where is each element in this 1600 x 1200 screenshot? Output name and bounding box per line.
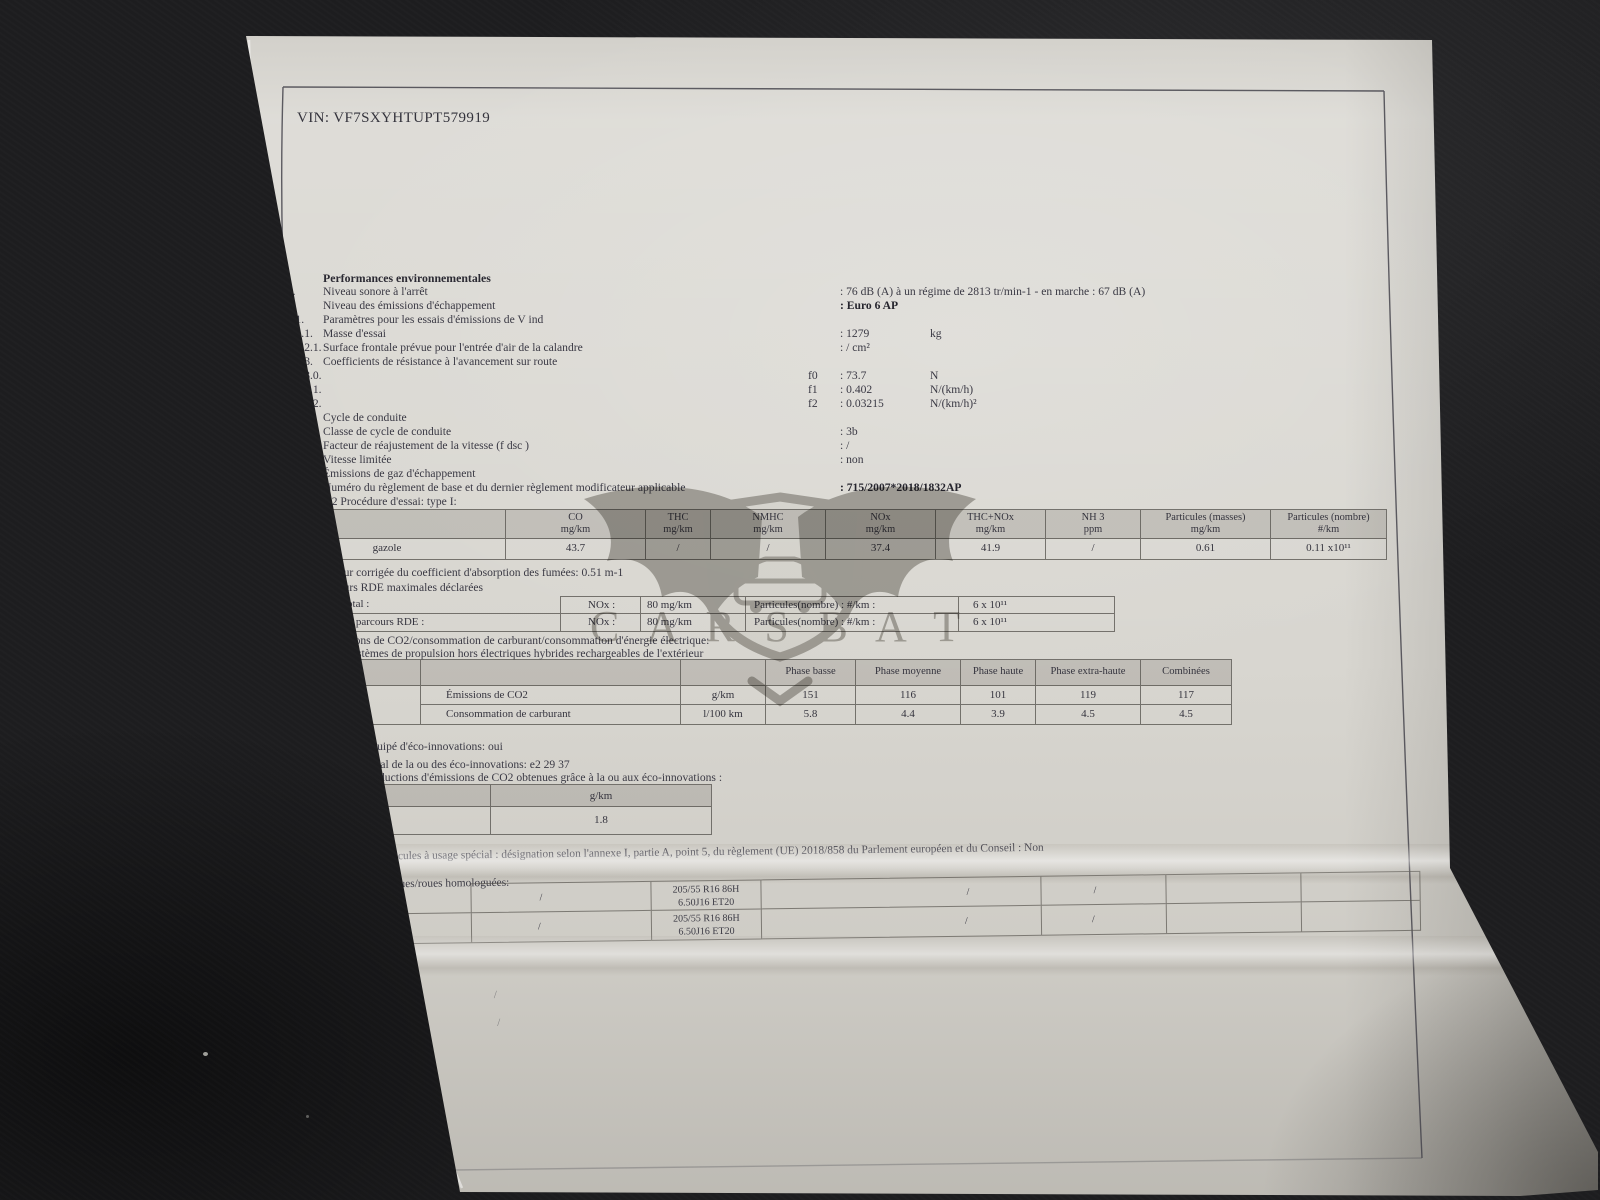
tire-cell-slash: / xyxy=(760,876,1040,910)
tire-spec-cell: 205/55 R16 86H 6.50J16 ET20 xyxy=(650,879,760,910)
tire-cell-slash: / xyxy=(1041,904,1166,936)
rim-size: 6.50J16 ET20 xyxy=(652,924,761,938)
tire-spec-cell: 205/55 R16 86H 6.50J16 ET20 xyxy=(651,909,761,940)
tire-cell-slash: / xyxy=(470,881,650,913)
rim-size: 6.50J16 ET20 xyxy=(652,895,761,909)
tire-cell-slash: / xyxy=(1040,874,1165,906)
tire-cell-slash: / xyxy=(471,911,651,943)
dust-speck xyxy=(203,1052,208,1056)
faint-slash-mark: / xyxy=(497,1017,500,1029)
tire-cell-empty xyxy=(1165,872,1300,904)
tire-cell-empty xyxy=(1166,902,1301,934)
faint-slash-mark: / xyxy=(494,989,497,1001)
tire-cell-empty xyxy=(1300,871,1420,903)
photo-scene: VIN: VF7SXYHTUPT579919 Performances envi… xyxy=(0,0,1600,1200)
dust-speck xyxy=(306,1115,309,1118)
tire-cell-slash: / xyxy=(761,906,1041,940)
tire-cell-empty xyxy=(1301,901,1421,933)
